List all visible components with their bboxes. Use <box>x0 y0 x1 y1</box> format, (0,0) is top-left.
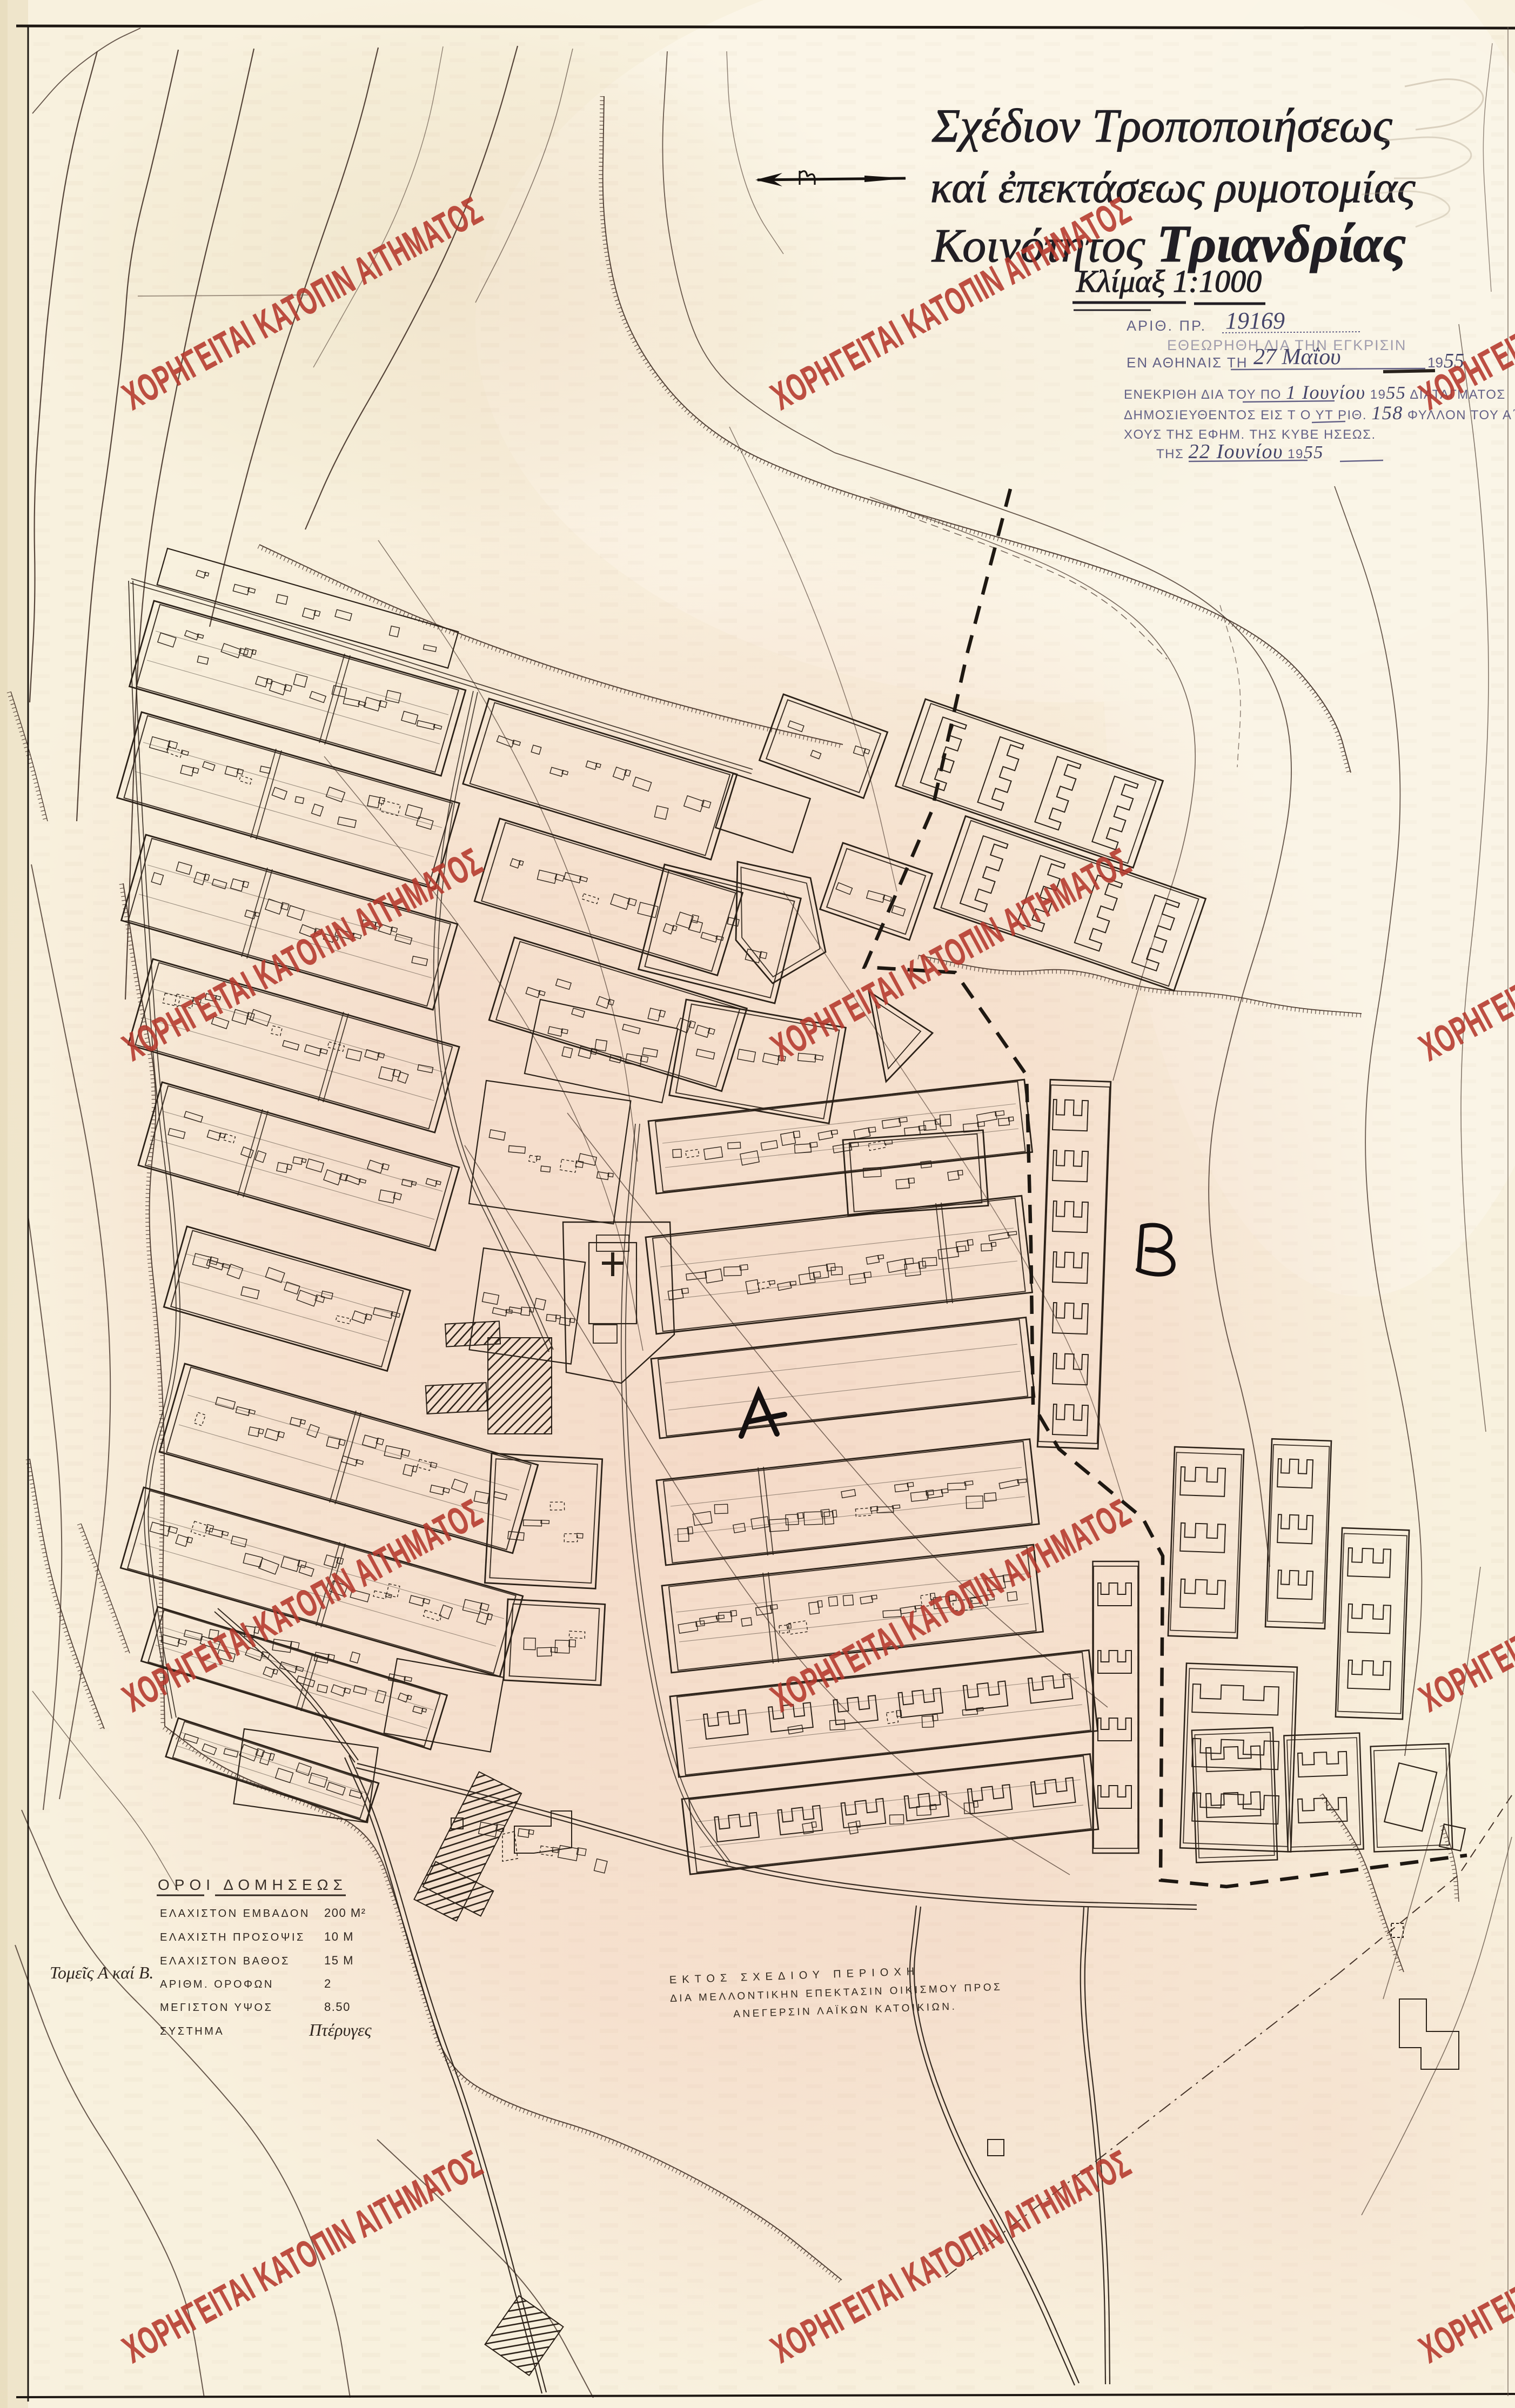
svg-text:ΕΛΑΧΙΣΤΟΝ ΕΜΒΑΔΟΝ: ΕΛΑΧΙΣΤΟΝ ΕΜΒΑΔΟΝ <box>160 1908 310 1920</box>
svg-text:10 Μ: 10 Μ <box>324 1930 354 1943</box>
svg-text:ΕΝ ΑΘΗΝΑΙΣ ΤΗ: ΕΝ ΑΘΗΝΑΙΣ ΤΗ <box>1127 354 1248 371</box>
svg-text:ΜΕΓΙΣΤΟΝ ΥΨΟΣ: ΜΕΓΙΣΤΟΝ ΥΨΟΣ <box>160 2002 273 2014</box>
svg-text:200 Μ²: 200 Μ² <box>324 1906 366 1920</box>
svg-text:ΣΥΣΤΗΜΑ: ΣΥΣΤΗΜΑ <box>160 2025 224 2037</box>
svg-text:ΑΡΙΘΜ. ΟΡΟΦΩΝ: ΑΡΙΘΜ. ΟΡΟΦΩΝ <box>160 1978 274 1990</box>
svg-text:Πτέρυγες: Πτέρυγες <box>309 2020 372 2040</box>
svg-text:Τομεῖς Α καί Β.: Τομεῖς Α καί Β. <box>50 1963 153 1982</box>
svg-text:Σχέδιον Τροποποιήσεως: Σχέδιον Τροποποιήσεως <box>931 100 1393 152</box>
svg-text:19169: 19169 <box>1225 307 1285 334</box>
svg-text:ΑΡΙΘ. ΠΡ.: ΑΡΙΘ. ΠΡ. <box>1127 318 1206 334</box>
svg-text:ΕΛΑΧΙΣΤΟΝ ΒΑΘΟΣ: ΕΛΑΧΙΣΤΟΝ ΒΑΘΟΣ <box>160 1955 290 1967</box>
svg-text:2: 2 <box>324 1977 332 1990</box>
svg-text:Κλίμαξ 1:1000: Κλίμαξ 1:1000 <box>1076 264 1262 299</box>
svg-text:ΟΡΟΙ ΔΟΜΗΣΕΩΣ: ΟΡΟΙ ΔΟΜΗΣΕΩΣ <box>158 1876 347 1893</box>
svg-text:8.50: 8.50 <box>324 2000 351 2014</box>
svg-text:ΕΛΑΧΙΣΤΗ ΠΡΟΣΟΨΙΣ: ΕΛΑΧΙΣΤΗ ΠΡΟΣΟΨΙΣ <box>160 1931 305 1943</box>
svg-text:καί ἐπεκτάσεως ρυμοτομίας: καί ἐπεκτάσεως ρυμοτομίας <box>930 163 1416 212</box>
svg-text:ΧΟΥΣ ΤΗΣ ΕΦΗΜ. ΤΗΣ ΚΥΒΕ ΗΣΕΩΣ: ΧΟΥΣ ΤΗΣ ΕΦΗΜ. ΤΗΣ ΚΥΒΕ ΗΣΕΩΣ. <box>1124 427 1376 442</box>
svg-text:27 Μαΐου: 27 Μαΐου <box>1253 345 1340 370</box>
svg-text:15 Μ: 15 Μ <box>324 1954 354 1967</box>
